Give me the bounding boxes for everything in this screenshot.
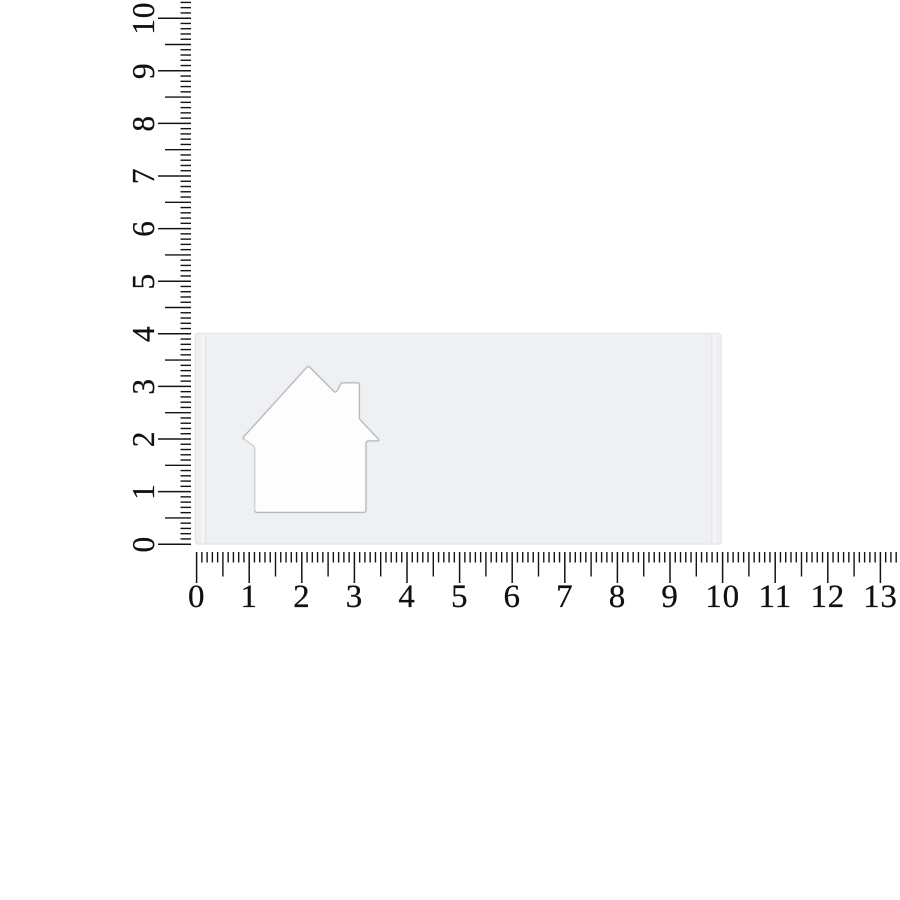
svg-text:1: 1 bbox=[241, 579, 258, 615]
svg-text:8: 8 bbox=[609, 579, 626, 615]
svg-text:4: 4 bbox=[398, 579, 415, 615]
svg-text:12: 12 bbox=[810, 579, 845, 615]
svg-text:6: 6 bbox=[504, 579, 521, 615]
svg-text:8: 8 bbox=[126, 115, 161, 132]
svg-text:11: 11 bbox=[759, 579, 792, 615]
svg-text:7: 7 bbox=[126, 168, 161, 185]
svg-text:3: 3 bbox=[126, 378, 161, 395]
svg-text:5: 5 bbox=[451, 579, 468, 615]
svg-text:0: 0 bbox=[126, 536, 161, 553]
svg-text:13: 13 bbox=[863, 579, 898, 615]
svg-text:1: 1 bbox=[126, 483, 161, 500]
svg-text:2: 2 bbox=[126, 431, 161, 448]
svg-text:6: 6 bbox=[126, 220, 161, 237]
svg-text:3: 3 bbox=[346, 579, 363, 615]
svg-text:10: 10 bbox=[705, 579, 740, 615]
svg-text:5: 5 bbox=[126, 273, 161, 290]
svg-text:9: 9 bbox=[126, 63, 161, 80]
svg-text:4: 4 bbox=[126, 326, 161, 343]
svg-text:2: 2 bbox=[293, 579, 310, 615]
svg-text:0: 0 bbox=[188, 579, 205, 615]
svg-text:9: 9 bbox=[661, 579, 678, 615]
svg-text:10: 10 bbox=[126, 2, 161, 35]
svg-text:7: 7 bbox=[556, 579, 573, 615]
